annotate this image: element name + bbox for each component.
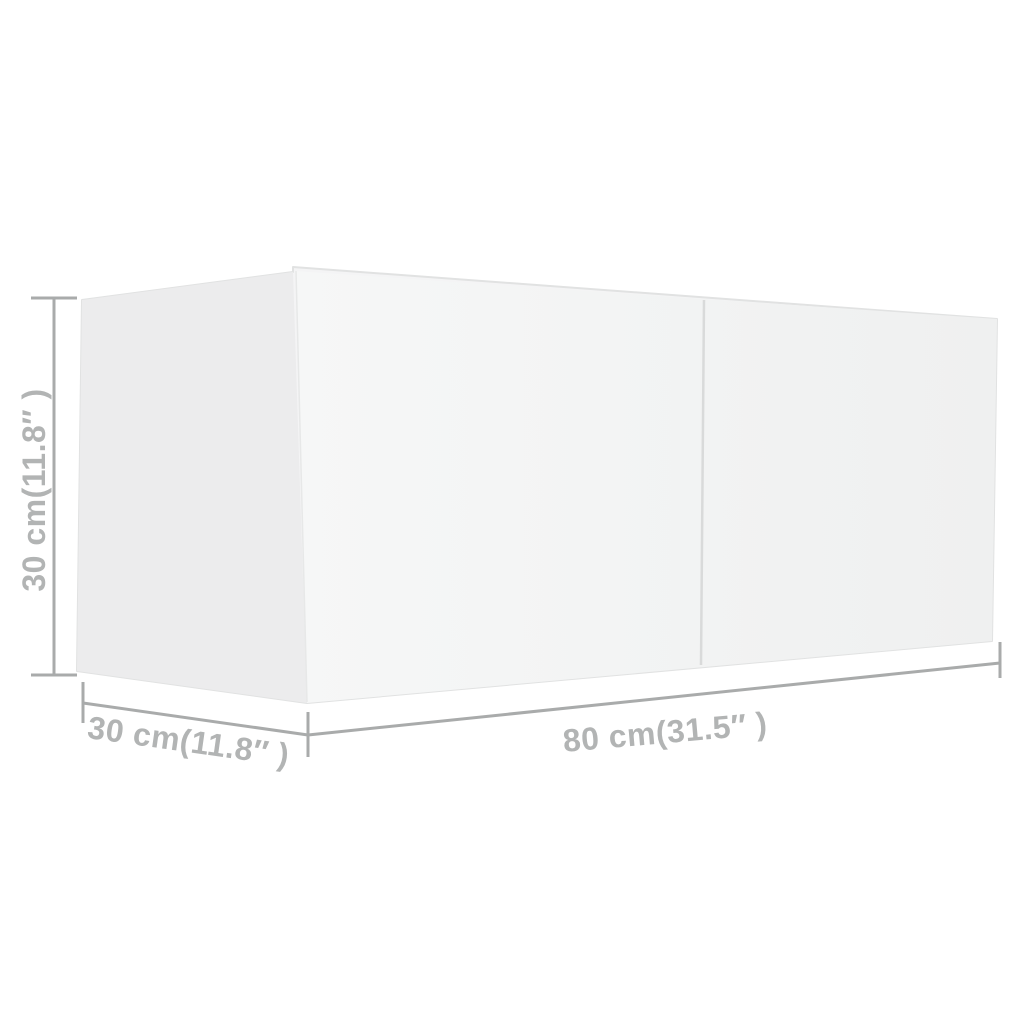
product-dimension-diagram: 30 cm(11.8″ ) 30 cm(11.8″ ) 80 cm(31.5″ …	[0, 0, 1024, 1024]
dimension-diagram-canvas: 30 cm(11.8″ ) 30 cm(11.8″ ) 80 cm(31.5″ …	[0, 0, 1024, 1024]
height-dimension-label: 30 cm(11.8″ )	[16, 388, 52, 591]
cabinet-left-face	[77, 272, 307, 703]
cabinet-front-face	[295, 271, 997, 703]
